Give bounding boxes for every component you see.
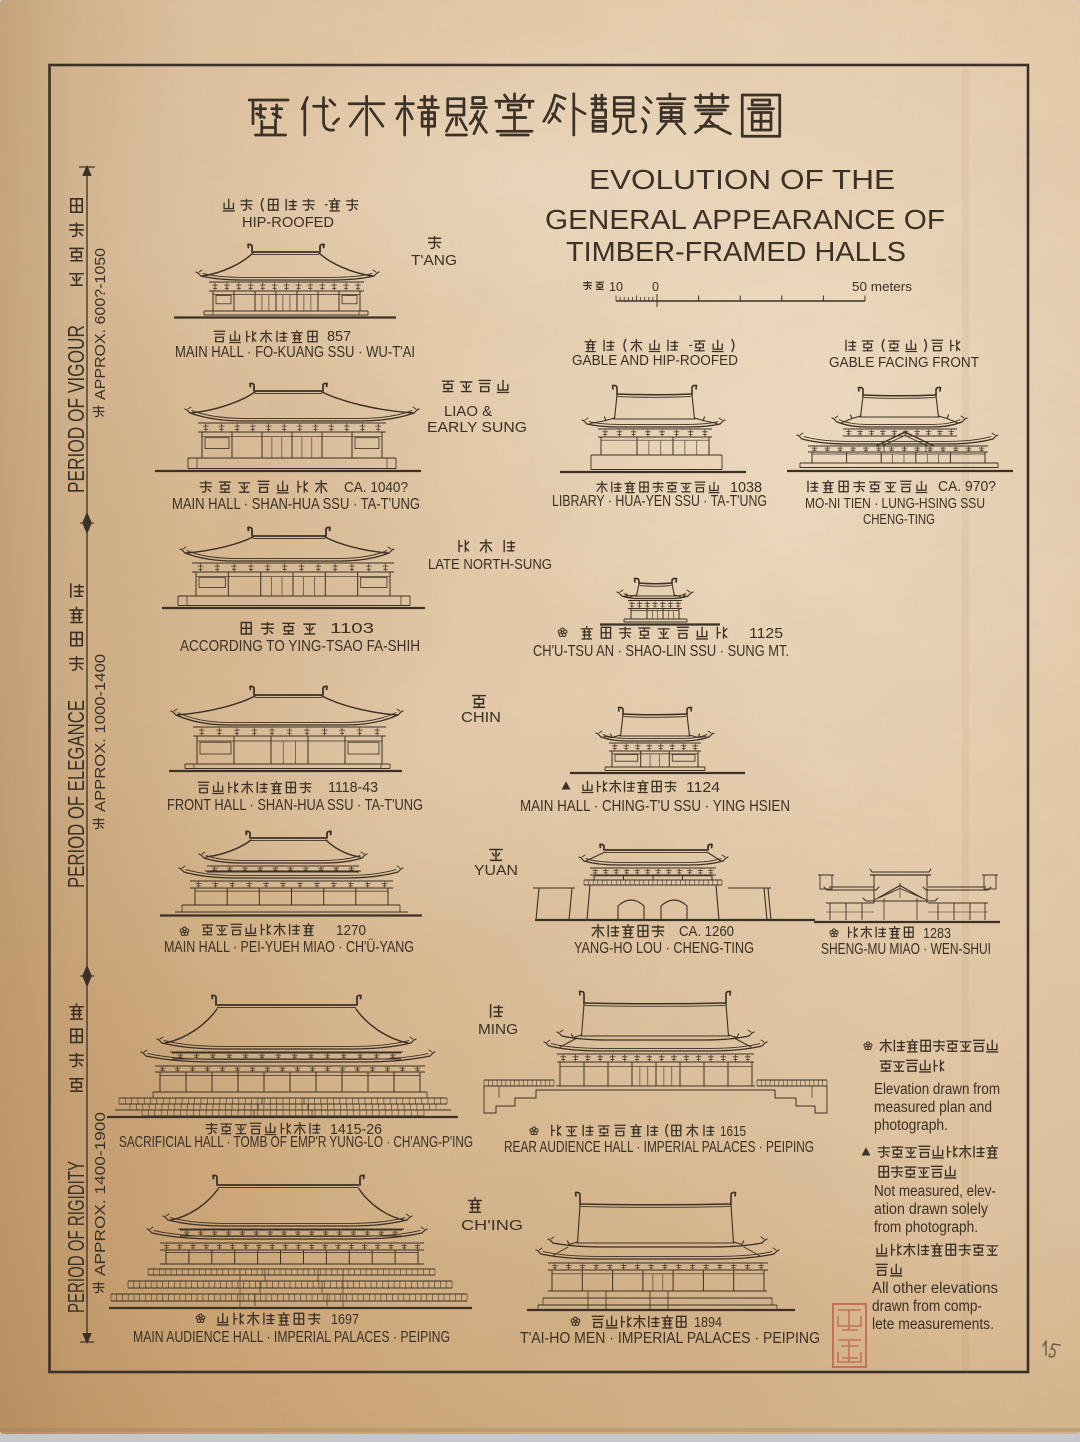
svg-text:LIBRARY · HUA-YEN SSU · TA-T'U: LIBRARY · HUA-YEN SSU · TA-T'UNG: [552, 493, 767, 510]
svg-text:1125: 1125: [749, 625, 783, 642]
svg-text:Not measured, elev-: Not measured, elev-: [874, 1183, 996, 1200]
svg-text:ACCORDING TO YING-TSAO FA-SHIH: ACCORDING TO YING-TSAO FA-SHIH: [180, 638, 420, 655]
svg-text:GABLE AND HIP-ROOFED: GABLE AND HIP-ROOFED: [572, 353, 738, 369]
svg-text:ation drawn solely: ation drawn solely: [874, 1201, 988, 1218]
svg-text:857: 857: [327, 328, 351, 345]
svg-text:PERIOD OF RIGIDITY: PERIOD OF RIGIDITY: [63, 1161, 89, 1313]
svg-text:APPROX. 1000-1400: APPROX. 1000-1400: [92, 654, 109, 812]
svg-text:CA. 970?: CA. 970?: [938, 478, 996, 495]
svg-text:FRONT HALL · SHAN-HUA SSU · TA: FRONT HALL · SHAN-HUA SSU · TA-T'UNG: [167, 797, 423, 814]
svg-text:lete measurements.: lete measurements.: [872, 1316, 994, 1333]
svg-text:photograph.: photograph.: [874, 1117, 948, 1134]
svg-text:MAIN HALL · PEI-YUEH MIAO · CH: MAIN HALL · PEI-YUEH MIAO · CH'Ü-YANG: [164, 938, 414, 956]
svg-text:APPROX. 1400-1900: APPROX. 1400-1900: [92, 1112, 109, 1276]
svg-text:PERIOD OF ELEGANCE: PERIOD OF ELEGANCE: [63, 700, 89, 888]
svg-text:10: 10: [609, 280, 623, 294]
svg-text:GENERAL APPEARANCE OF: GENERAL APPEARANCE OF: [545, 204, 945, 235]
svg-text:MAIN AUDIENCE HALL · IMPERIAL: MAIN AUDIENCE HALL · IMPERIAL PALACES · …: [133, 1329, 450, 1346]
svg-text:CHENG-TING: CHENG-TING: [863, 512, 935, 528]
svg-text:measured plan and: measured plan and: [874, 1099, 992, 1116]
svg-text:EVOLUTION OF THE: EVOLUTION OF THE: [589, 164, 895, 195]
svg-text:CA. 1040?: CA. 1040?: [344, 479, 408, 496]
svg-text:1124: 1124: [686, 779, 720, 796]
svg-text:HIP-ROOFED: HIP-ROOFED: [242, 215, 334, 231]
svg-text:PERIOD OF VIGOUR: PERIOD OF VIGOUR: [63, 325, 89, 493]
svg-text:YANG-HO LOU · CHENG-TING: YANG-HO LOU · CHENG-TING: [574, 940, 754, 957]
svg-text:Elevation drawn from: Elevation drawn from: [874, 1081, 1000, 1098]
svg-text:SHENG-MU MIAO · WEN-SHUI: SHENG-MU MIAO · WEN-SHUI: [821, 941, 991, 958]
svg-text:1118-43: 1118-43: [328, 779, 378, 796]
svg-text:1894: 1894: [694, 1314, 722, 1331]
svg-text:MING: MING: [478, 1022, 518, 1038]
svg-text:GABLE FACING FRONT: GABLE FACING FRONT: [829, 355, 979, 371]
svg-text:CHIN: CHIN: [461, 710, 501, 726]
svg-text:1283: 1283: [923, 925, 951, 942]
svg-text:T'AI-HO MEN · IMPERIAL PALACES: T'AI-HO MEN · IMPERIAL PALACES · PEIPING: [520, 1330, 820, 1347]
svg-text:TIMBER-FRAMED HALLS: TIMBER-FRAMED HALLS: [566, 236, 906, 267]
svg-text:LATE NORTH-SUNG: LATE NORTH-SUNG: [428, 557, 552, 573]
svg-text:MAIN HALL · CHING-T'U SSU · YI: MAIN HALL · CHING-T'U SSU · YING HSIEN: [520, 798, 790, 815]
svg-text:MO-NI TIEN · LUNG-HSING SSU: MO-NI TIEN · LUNG-HSING SSU: [805, 496, 985, 512]
svg-text:MAIN HALL · SHAN-HUA SSU · TA-: MAIN HALL · SHAN-HUA SSU · TA-T'UNG: [172, 496, 420, 513]
svg-text:50 meters: 50 meters: [852, 279, 913, 294]
svg-text:.: .: [907, 1059, 911, 1075]
svg-text:APPROX. 600?-1050: APPROX. 600?-1050: [92, 248, 109, 400]
svg-text:CH'U-TSU AN · SHAO-LIN SSU · S: CH'U-TSU AN · SHAO-LIN SSU · SUNG MT.: [533, 643, 789, 660]
svg-text:SACRIFICIAL HALL · TOMB OF EMP: SACRIFICIAL HALL · TOMB OF EMP'R YUNG-LO…: [119, 1134, 473, 1151]
svg-text:1270: 1270: [336, 922, 366, 939]
svg-text:CA. 1260: CA. 1260: [679, 923, 734, 940]
svg-text:1697: 1697: [331, 1311, 359, 1328]
svg-text:T'ANG: T'ANG: [411, 253, 457, 269]
svg-text:All other elevations: All other elevations: [872, 1280, 998, 1297]
svg-text:CH'ING: CH'ING: [461, 1218, 523, 1234]
svg-text:1103: 1103: [330, 620, 374, 637]
svg-text:from photograph.: from photograph.: [874, 1219, 978, 1236]
svg-text:0: 0: [652, 280, 659, 294]
svg-text:MAIN HALL · FO-KUANG SSU · WU-: MAIN HALL · FO-KUANG SSU · WU-T'AI: [175, 344, 415, 361]
svg-text:YUAN: YUAN: [474, 863, 518, 879]
svg-text:1615: 1615: [720, 1123, 746, 1140]
svg-text:LIAO &: LIAO &: [444, 404, 492, 420]
svg-text:REAR AUDIENCE HALL · IMPERIAL: REAR AUDIENCE HALL · IMPERIAL PALACES · …: [504, 1139, 814, 1156]
svg-text:EARLY SUNG: EARLY SUNG: [427, 420, 527, 436]
svg-text:drawn from comp-: drawn from comp-: [872, 1298, 982, 1315]
